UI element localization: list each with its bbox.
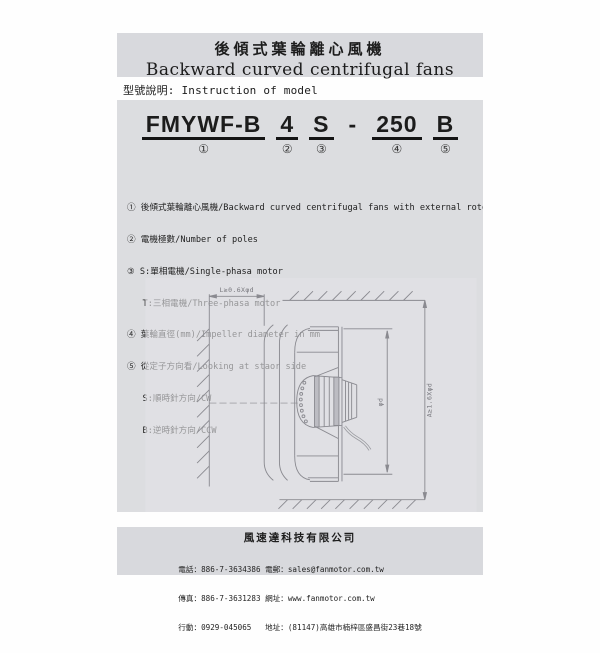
dimension-l-label: L≥0.6Xφd	[219, 286, 254, 294]
model-segment-phase: S ③	[309, 111, 333, 156]
model-segment-number: ④	[391, 142, 402, 156]
model-instruction-panel: FMYWF-B ① 4 ② S ③ - 250 ④ B ⑤ ① 後傾式葉輪離心風…	[117, 100, 483, 512]
contact-line-mobile-address: 行動：0929-045065 地址：(81147)高雄市楠梓區盛昌街23巷18號	[178, 623, 421, 633]
model-segment-hyphen: -	[345, 111, 362, 156]
section-label: 型號說明: Instruction of model	[123, 82, 318, 98]
model-segment-number: ⑤	[440, 142, 451, 156]
contact-info: 電話：886-7-3634386 電郵：sales@fanmotor.com.t…	[178, 546, 421, 652]
model-segment-prefix: FMYWF-B ①	[142, 111, 266, 156]
contact-line-fax-website: 傳真：886-7-3631283 網址：www.fanmotor.com.tw	[178, 594, 421, 604]
model-segment-text: B	[433, 111, 459, 140]
model-segment-number: ②	[282, 142, 293, 156]
model-segment-poles: 4 ②	[276, 111, 298, 156]
fan-installation-drawing: L≥0.6Xφd A≥1.6Xφd φd	[145, 278, 481, 512]
title-english: Backward curved centrifugal fans	[117, 60, 483, 80]
model-code: FMYWF-B ① 4 ② S ③ - 250 ④ B ⑤	[117, 111, 483, 156]
dimension-a-label: A≥1.6Xφd	[425, 383, 433, 418]
dimension-d-label: φd	[377, 398, 385, 407]
legend-item: ③ S:單相電機/Single-phasa motor	[127, 267, 483, 278]
company-name: 風速達科技有限公司	[117, 527, 483, 545]
model-segment-text: 250	[372, 111, 421, 140]
page-footer: 風速達科技有限公司 電話：886-7-3634386 電郵：sales@fanm…	[117, 527, 483, 575]
model-segment-text: 4	[276, 111, 298, 140]
model-segment-number: ①	[198, 142, 209, 156]
title-chinese: 後傾式葉輪離心風機	[117, 33, 483, 59]
legend-item: ② 電機極數/Number of poles	[127, 235, 483, 246]
model-segment-text: FMYWF-B	[142, 111, 266, 140]
model-segment-diameter: 250 ④	[372, 111, 421, 156]
model-segment-text: -	[345, 111, 362, 140]
model-segment-rotation: B ⑤	[433, 111, 459, 156]
model-segment-number: ③	[316, 142, 327, 156]
model-segment-text: S	[309, 111, 333, 140]
page-header: 後傾式葉輪離心風機 Backward curved centrifugal fa…	[117, 33, 483, 77]
contact-line-phone-email: 電話：886-7-3634386 電郵：sales@fanmotor.com.t…	[178, 565, 421, 575]
legend-item: ① 後傾式葉輪離心風機/Backward curved centrifugal …	[127, 203, 483, 214]
